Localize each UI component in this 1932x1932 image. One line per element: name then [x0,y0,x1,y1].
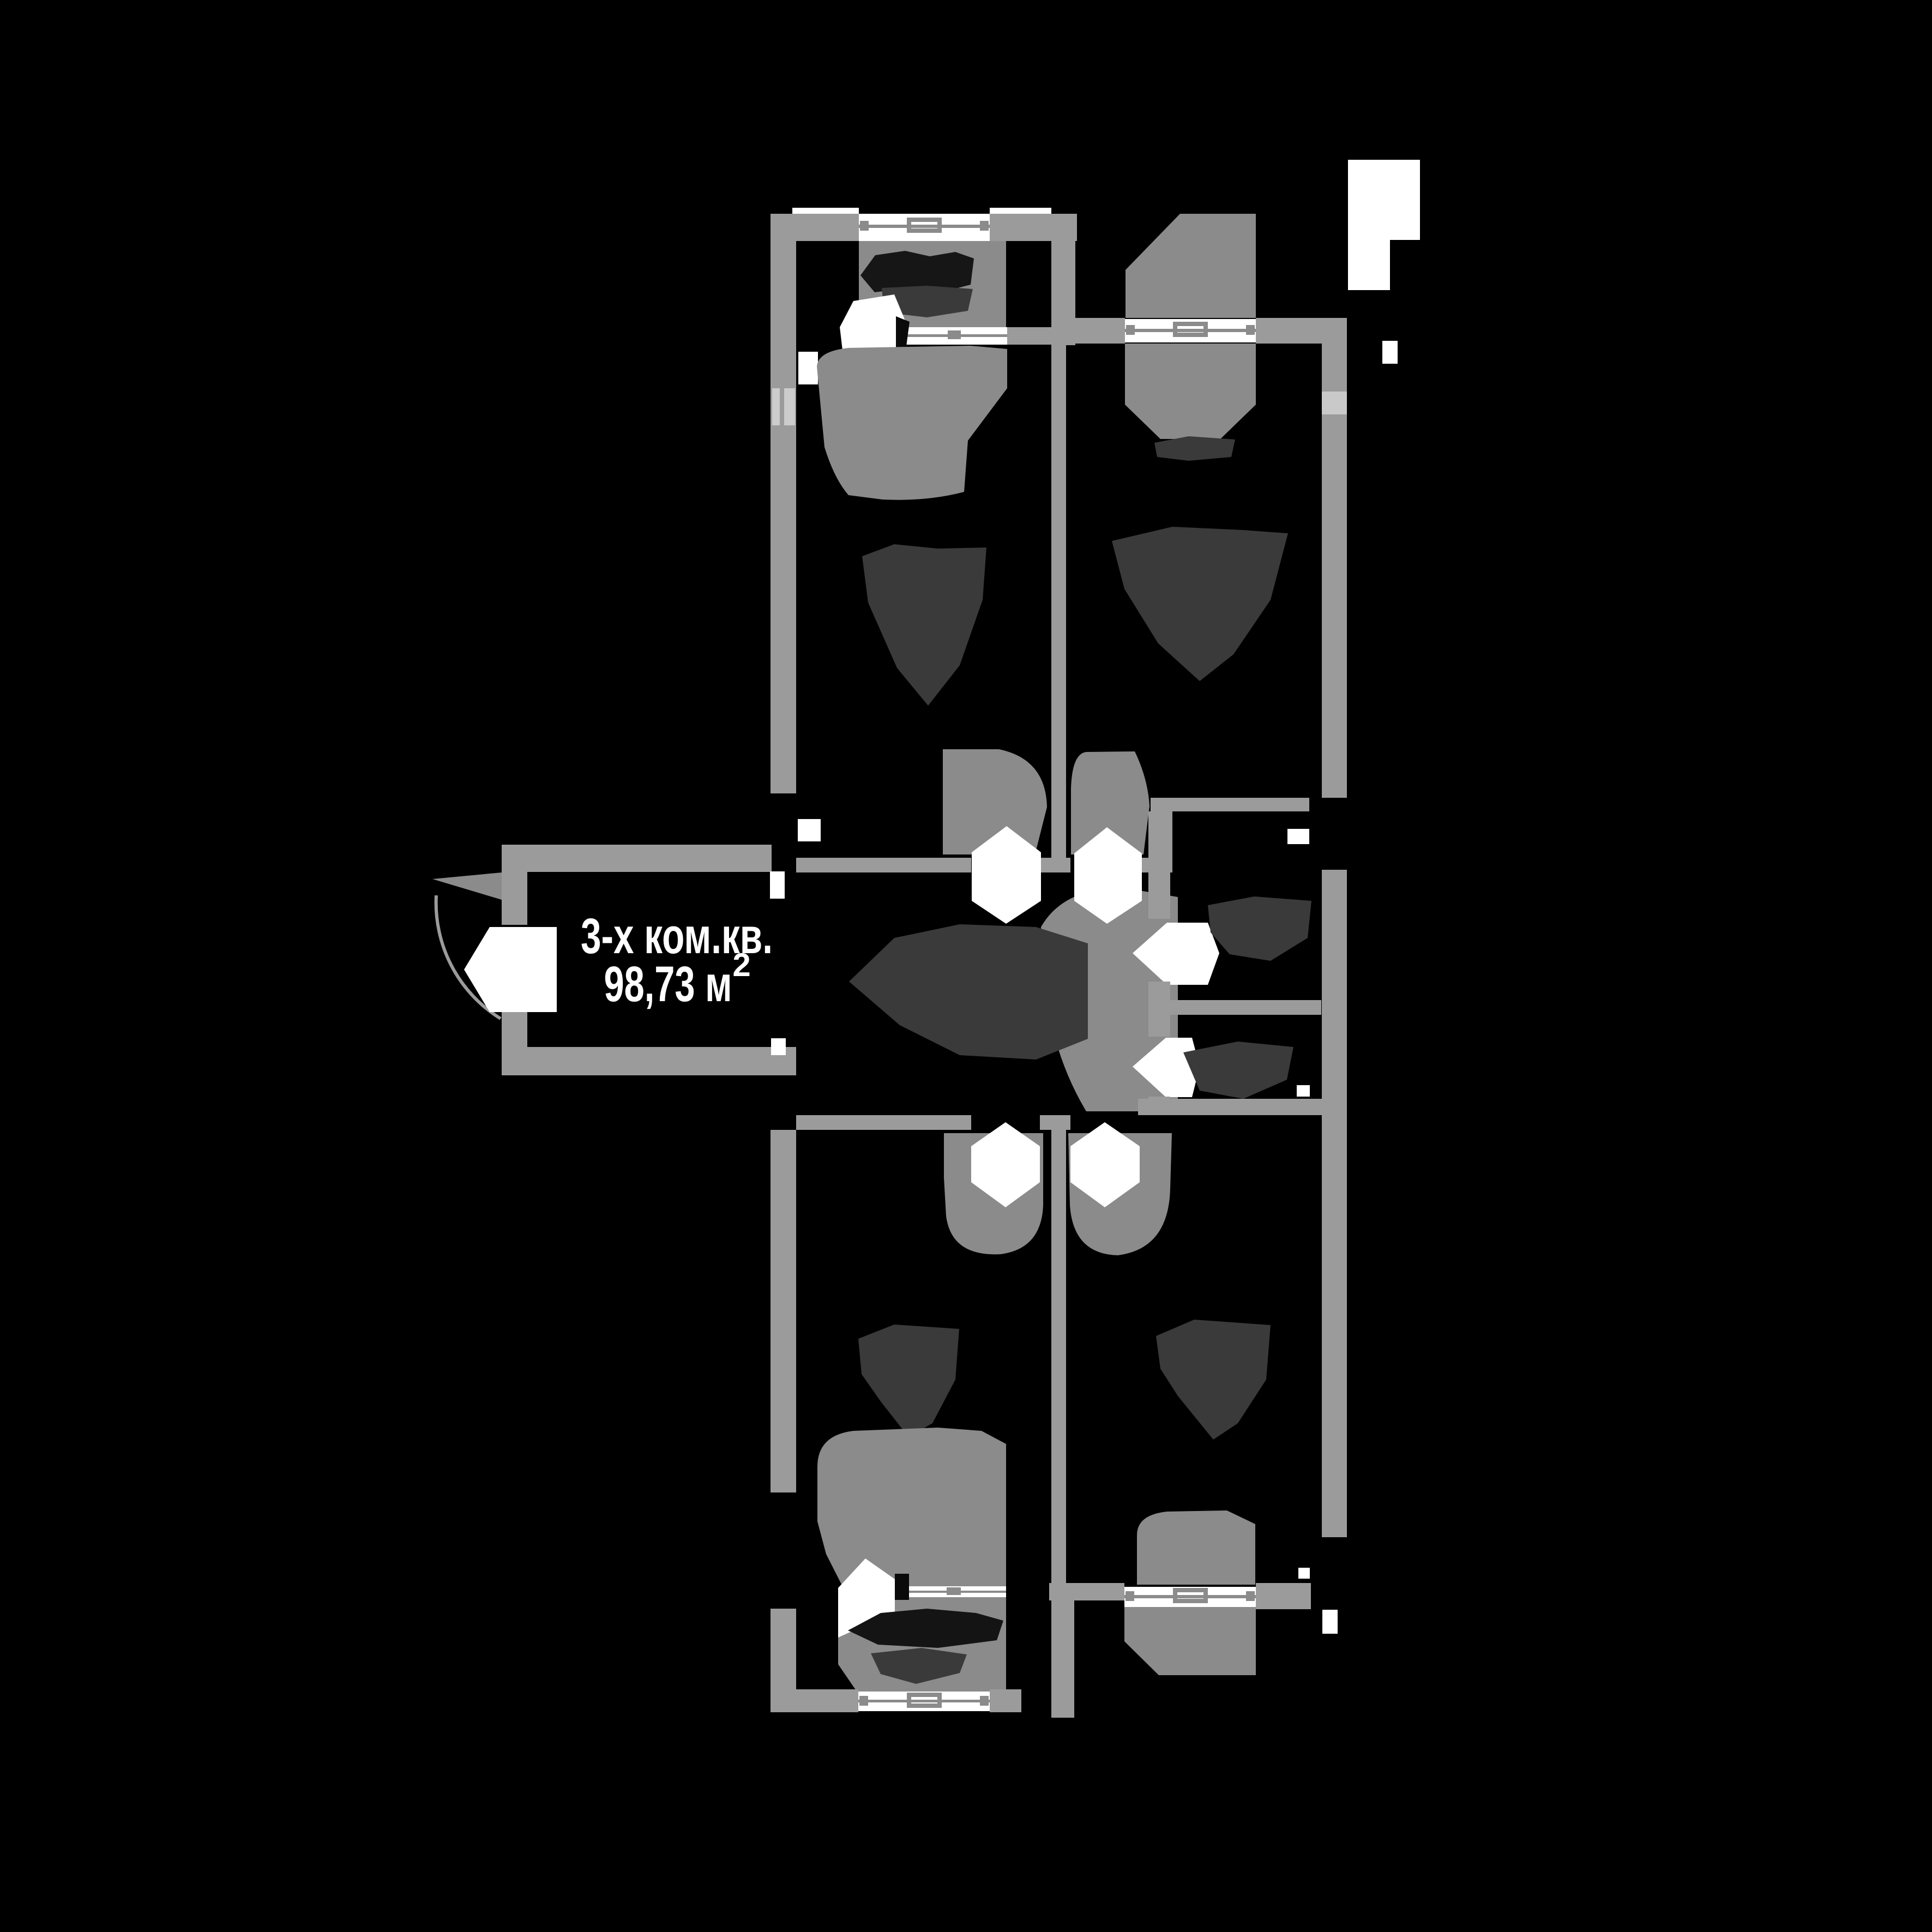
svg-text:2: 2 [732,947,750,983]
svg-text:98,73 м: 98,73 м [604,956,732,1012]
